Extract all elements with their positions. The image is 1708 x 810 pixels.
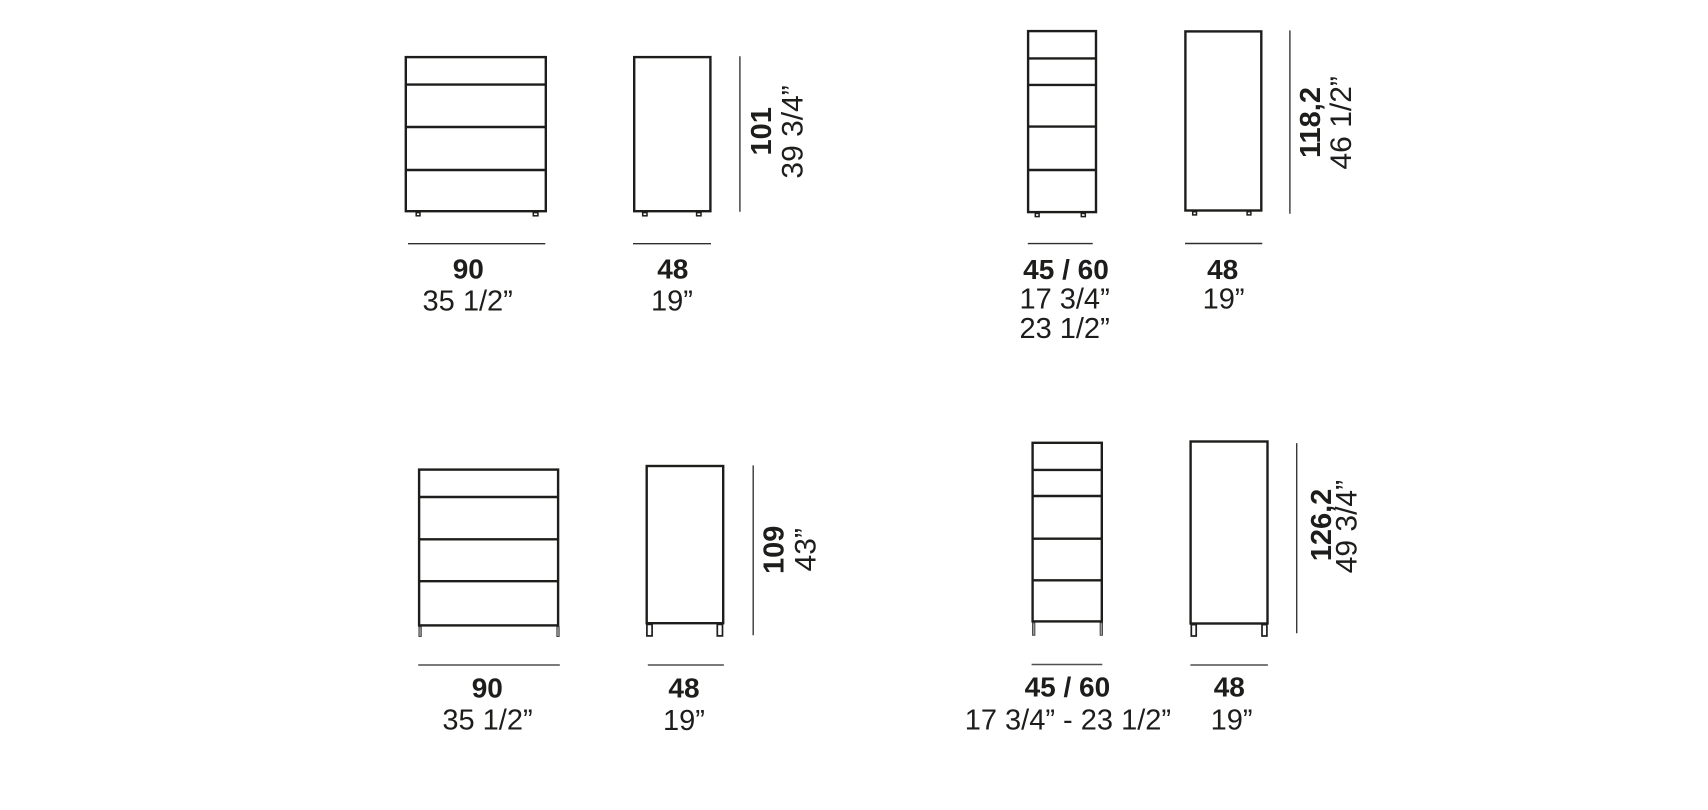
svg-text:45 / 60: 45 / 60: [1025, 671, 1111, 702]
svg-text:39 3/4”: 39 3/4”: [776, 85, 809, 178]
svg-text:49 3/4”: 49 3/4”: [1331, 480, 1364, 573]
svg-text:48: 48: [1214, 671, 1245, 702]
svg-text:90: 90: [453, 253, 484, 284]
svg-text:23 1/2”: 23 1/2”: [1019, 313, 1109, 345]
svg-text:43”: 43”: [790, 528, 823, 571]
svg-text:48: 48: [668, 672, 699, 703]
svg-text:19”: 19”: [663, 705, 705, 737]
svg-text:17 3/4”: 17 3/4”: [1019, 284, 1109, 316]
svg-text:19”: 19”: [1203, 284, 1245, 316]
svg-text:109: 109: [758, 526, 790, 574]
svg-text:118,2: 118,2: [1295, 87, 1327, 158]
svg-text:35 1/2”: 35 1/2”: [423, 286, 513, 318]
svg-text:48: 48: [657, 253, 688, 284]
svg-text:35 1/2”: 35 1/2”: [442, 705, 532, 737]
svg-text:19”: 19”: [651, 286, 693, 318]
svg-text:46 1/2”: 46 1/2”: [1325, 76, 1358, 169]
svg-text:48: 48: [1207, 254, 1238, 285]
svg-text:19”: 19”: [1211, 704, 1253, 736]
svg-text:90: 90: [472, 673, 503, 704]
svg-text:101: 101: [746, 107, 778, 155]
svg-text:17 3/4” - 23 1/2”: 17 3/4” - 23 1/2”: [965, 704, 1171, 736]
svg-text:45 / 60: 45 / 60: [1023, 254, 1109, 285]
